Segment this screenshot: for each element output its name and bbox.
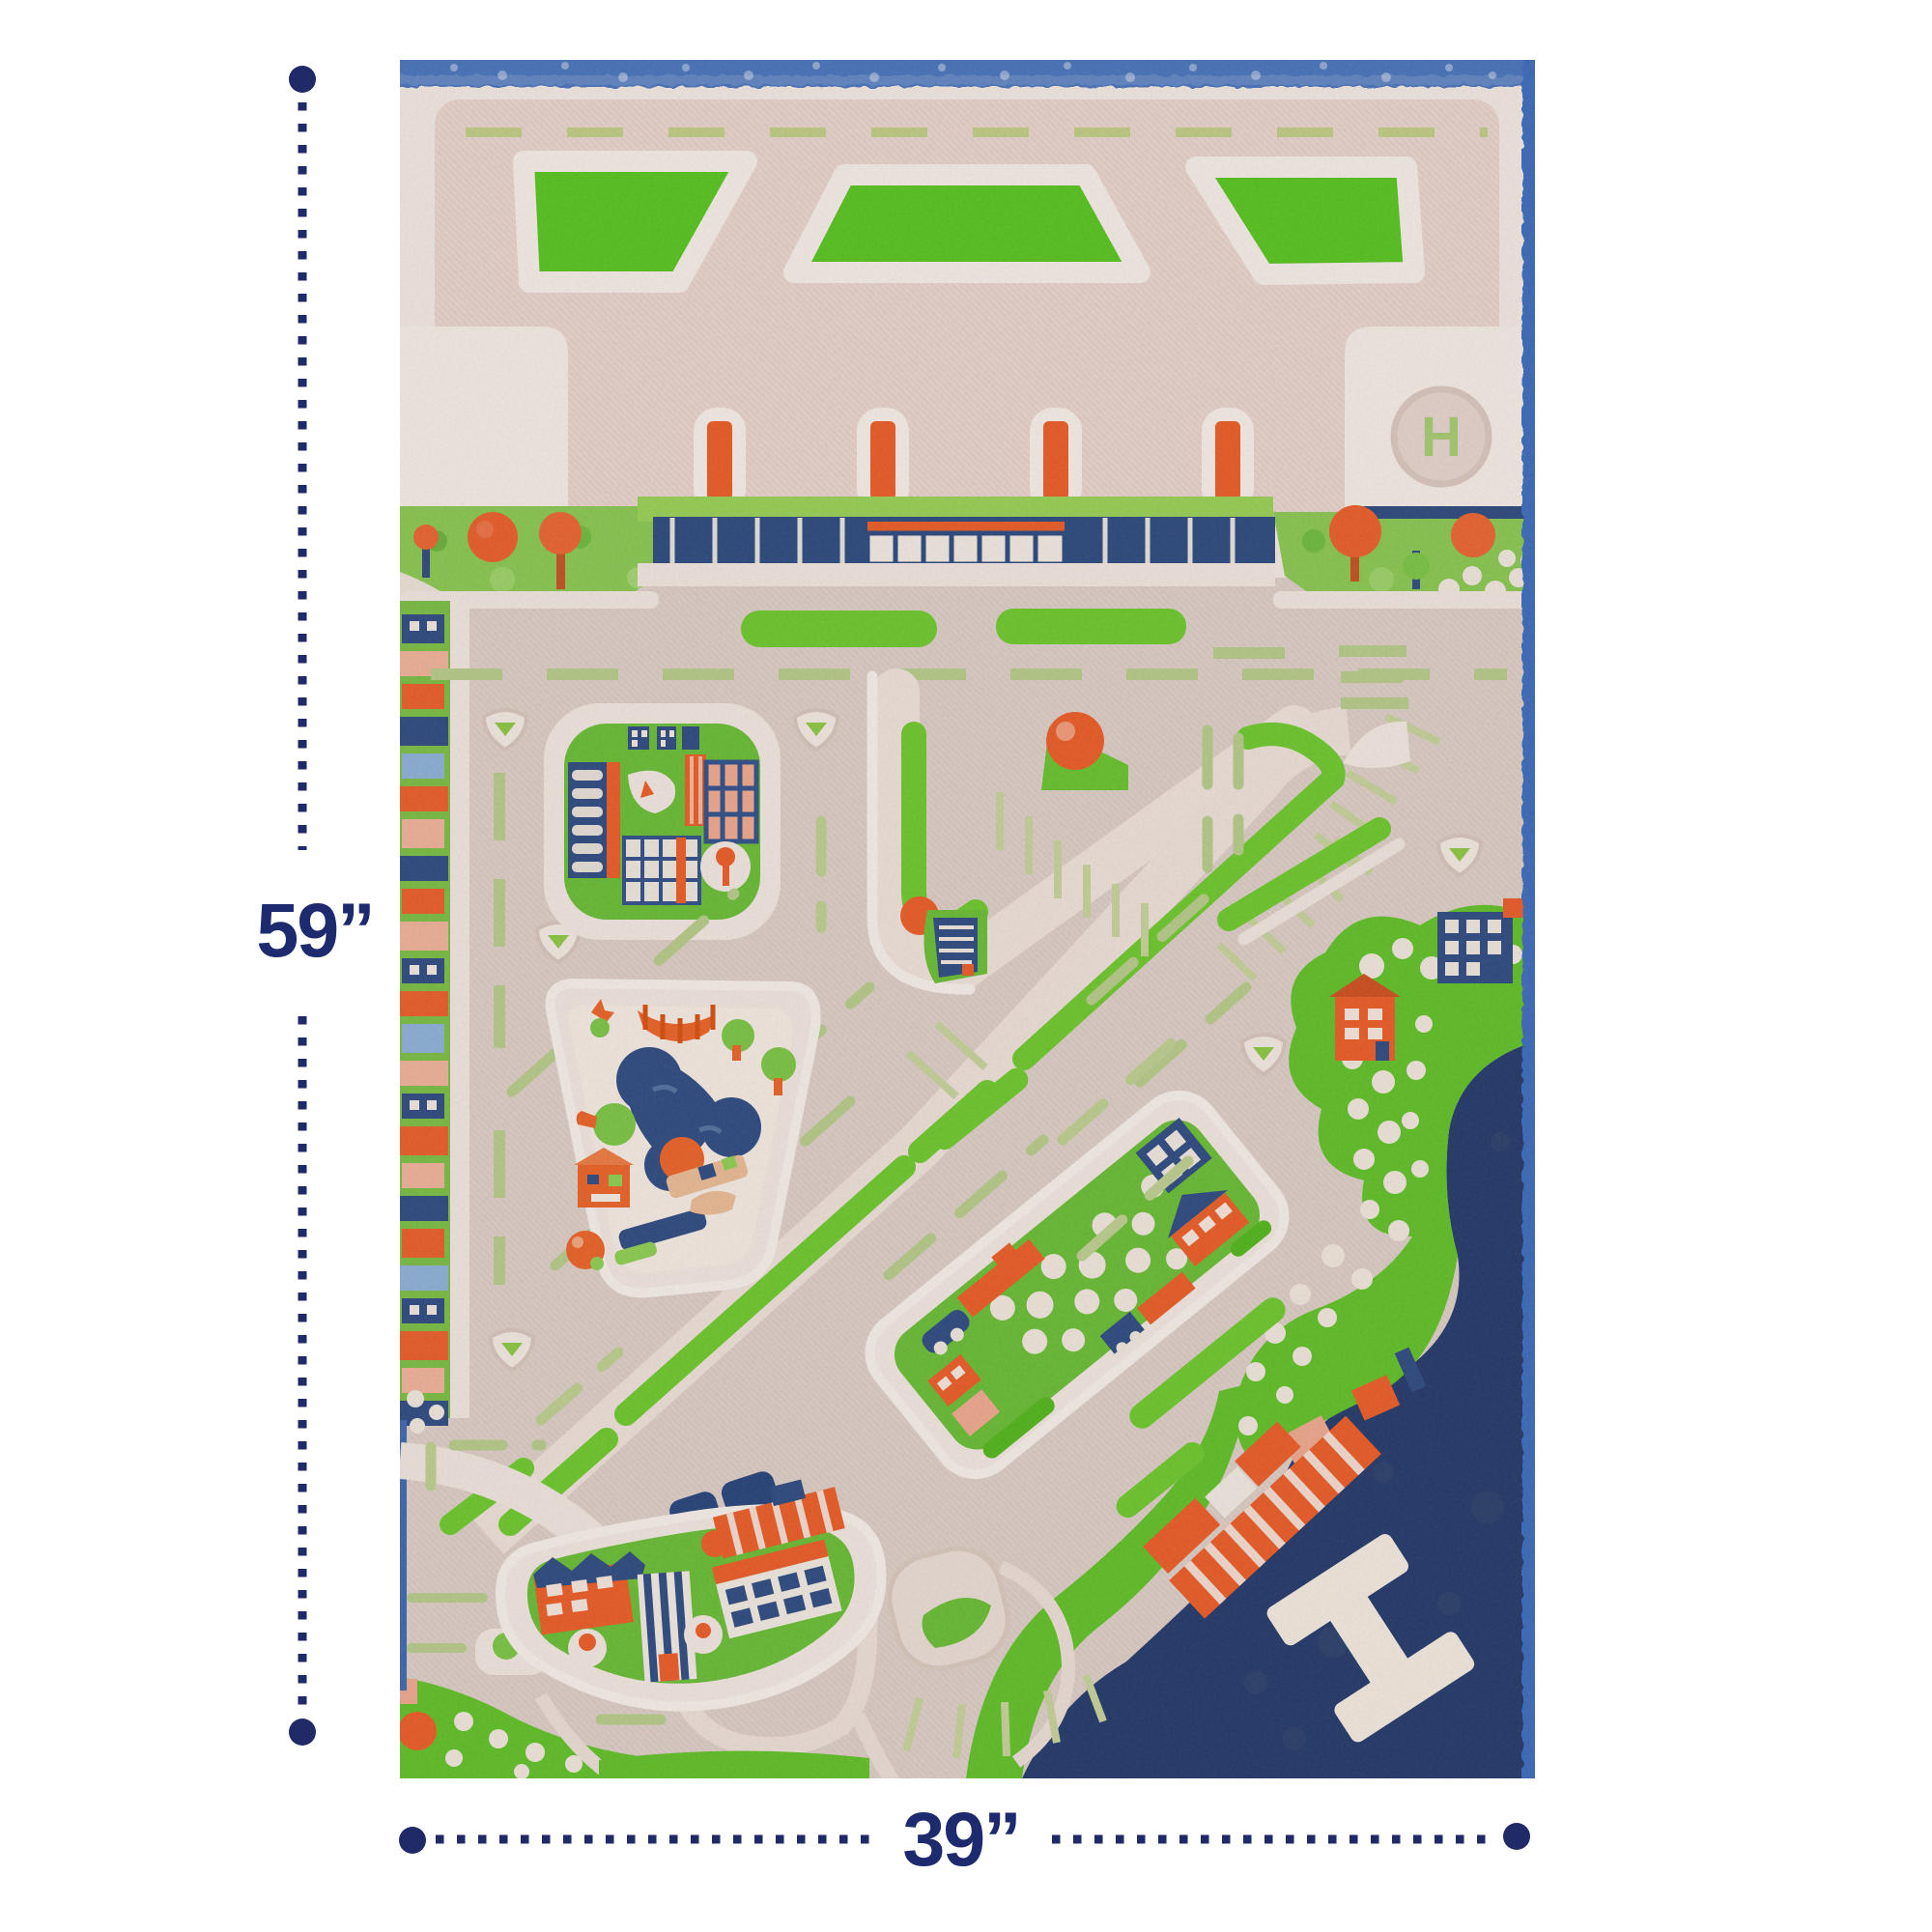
svg-text:39”: 39” [902, 1796, 1019, 1882]
svg-text:59”: 59” [256, 887, 373, 973]
